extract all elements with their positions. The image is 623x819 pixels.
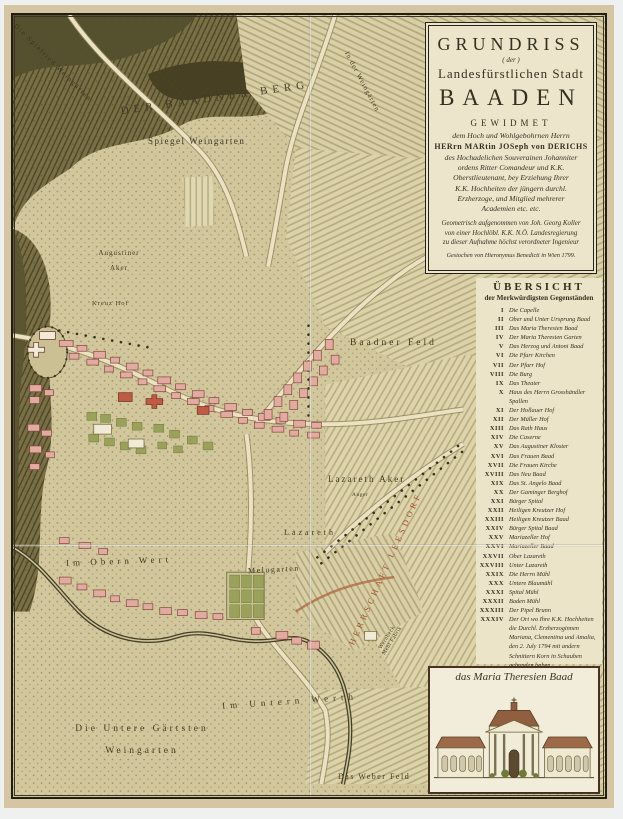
legend-item-numeral: VII bbox=[478, 361, 509, 370]
legend-panel: ÜBERSICHT der Merkwürdigsten Gegenstände… bbox=[476, 278, 602, 664]
map-title-baaden: BAADEN bbox=[433, 85, 589, 111]
dedication-heading: GEWIDMET bbox=[433, 118, 589, 128]
legend-item-numeral: XX bbox=[478, 488, 509, 497]
legend-item-XXXII: XXXIIBaden Mühl bbox=[478, 597, 600, 606]
map-sheet: Die Spielried Weingärten DER BAADNER BER… bbox=[4, 5, 614, 808]
legend-item-XVIII: XVIIIDas Neu Baad bbox=[478, 470, 600, 479]
legend-item-XVI: XVIDas Frauen Baad bbox=[478, 452, 600, 461]
legend-item-XXII: XXIIHeiligen Kreutzer Hof bbox=[478, 506, 600, 515]
legend-item-label: Heiligen Kreutzer Baad bbox=[509, 515, 600, 524]
legend-item-label: Das Augustiner Kloster bbox=[509, 442, 600, 451]
legend-item-XV: XVDas Augustiner Kloster bbox=[478, 442, 600, 451]
legend-item-numeral: XVIII bbox=[478, 470, 509, 479]
legend-item-numeral: XXXII bbox=[478, 597, 509, 606]
legend-item-numeral: II bbox=[478, 315, 509, 324]
map-title-der: ( der ) bbox=[433, 56, 589, 64]
legend-item-numeral: XIX bbox=[478, 479, 509, 488]
legend-item-numeral: XXIV bbox=[478, 524, 509, 533]
legend-item-XXV: XXVMariazeller Hof bbox=[478, 533, 600, 542]
legend-item-label: Der Ort wo Ihre K.K. Hochheiten die Durc… bbox=[509, 615, 600, 670]
dedication-body: des Hochadelichen Souverainen Johanniter… bbox=[433, 153, 589, 214]
inset-caption: das Maria Theresien Baad bbox=[430, 671, 598, 683]
maria-theresien-baad-drawing bbox=[430, 690, 598, 790]
legend-item-numeral: XVI bbox=[478, 452, 509, 461]
legend-subtitle: der Merkwürdigsten Gegenständen bbox=[478, 294, 600, 302]
legend-item-label: Das Rath Haus bbox=[509, 424, 600, 433]
legend-item-numeral: V bbox=[478, 342, 509, 351]
legend-item-label: Mariazeller Hof bbox=[509, 533, 600, 542]
legend-item-numeral: III bbox=[478, 324, 509, 333]
legend-item-numeral: XIII bbox=[478, 424, 509, 433]
legend-item-label: Die Frauen Kirche bbox=[509, 461, 600, 470]
legend-item-XII: XIIDer Müller Hof bbox=[478, 415, 600, 424]
legend-item-numeral: IV bbox=[478, 333, 509, 342]
legend-item-label: Das Maria Theresien Baad bbox=[509, 324, 600, 333]
legend-item-label: Der Müller Hof bbox=[509, 415, 600, 424]
legend-item-label: Spital Mühl bbox=[509, 588, 600, 597]
legend-item-XXIV: XXIVBürger Spital Baad bbox=[478, 524, 600, 533]
fold-crease-horizontal bbox=[13, 544, 605, 547]
legend-item-label: Die Herrn Mühl bbox=[509, 570, 600, 579]
title-cartouche-inner: GRUNDRISS ( der ) Landesfürstlichen Stad… bbox=[428, 25, 594, 271]
legend-item-label: Bürger Spital bbox=[509, 497, 600, 506]
legend-item-XXXIII: XXXIIIDer Pipel Brunn bbox=[478, 606, 600, 615]
legend-item-numeral: XV bbox=[478, 442, 509, 451]
legend-item-I: IDie Capelle bbox=[478, 306, 600, 315]
legend-item-numeral: XXIX bbox=[478, 570, 509, 579]
legend-item-numeral: VI bbox=[478, 351, 509, 360]
legend-item-label: Unter Lazareth bbox=[509, 561, 600, 570]
legend-item-IV: IVDer Maria Theresien Garten bbox=[478, 333, 600, 342]
legend-item-numeral: XXVIII bbox=[478, 561, 509, 570]
legend-item-label: Haus des Herrn Grosshändler Spallen bbox=[509, 388, 600, 406]
legend-item-numeral: XXXIII bbox=[478, 606, 509, 615]
legend-item-label: Der Pipel Brunn bbox=[509, 606, 600, 615]
legend-item-XXXIV: XXXIVDer Ort wo Ihre K.K. Hochheiten die… bbox=[478, 615, 600, 670]
engraver-imprint: Gestochen von Hieronymus Benedicti in Wi… bbox=[433, 252, 589, 259]
legend-item-numeral: XXII bbox=[478, 506, 509, 515]
legend-item-label: Das St. Angelo Baad bbox=[509, 479, 600, 488]
legend-item-numeral: XXV bbox=[478, 533, 509, 542]
map-title-stadt: Landesfürstlichen Stadt bbox=[433, 66, 589, 82]
dedication-intro: dem Hoch und Wohlgebohrnen Herrn bbox=[433, 131, 589, 140]
legend-item-label: Das Frauen Baad bbox=[509, 452, 600, 461]
legend-item-VII: VIIDer Pfarr Hof bbox=[478, 361, 600, 370]
legend-item-label: Der Maria Theresien Garten bbox=[509, 333, 600, 342]
surveyor-credit: Geometrisch aufgenommen von Joh. Georg K… bbox=[433, 219, 589, 247]
inset-view-frame: das Maria Theresien Baad bbox=[428, 666, 600, 794]
legend-item-numeral: XXIII bbox=[478, 515, 509, 524]
legend-item-label: Ober Lazareth bbox=[509, 552, 600, 561]
dedication-name: HERrn MARtin JOSeph von DERICHS bbox=[433, 142, 589, 151]
fold-crease-vertical bbox=[309, 15, 312, 797]
legend-item-numeral: XXX bbox=[478, 579, 509, 588]
legend-item-numeral: XIV bbox=[478, 433, 509, 442]
legend-item-label: Die Pfarr Kirchen bbox=[509, 351, 600, 360]
legend-item-II: IIOber und Unter Ursprung Baad bbox=[478, 315, 600, 324]
map-border-frame: Die Spielried Weingärten DER BAADNER BER… bbox=[11, 13, 607, 799]
legend-item-label: Der Gaminger Berghof bbox=[509, 488, 600, 497]
legend-item-VI: VIDie Pfarr Kirchen bbox=[478, 351, 600, 360]
legend-item-XXIII: XXIIIHeiligen Kreutzer Baad bbox=[478, 515, 600, 524]
legend-item-XXVIII: XXVIIIUnter Lazareth bbox=[478, 561, 600, 570]
legend-item-label: Die Burg bbox=[509, 370, 600, 379]
legend-item-XIV: XIVDie Caserne bbox=[478, 433, 600, 442]
legend-item-VIII: VIIIDie Burg bbox=[478, 370, 600, 379]
legend-item-label: Der Pfarr Hof bbox=[509, 361, 600, 370]
legend-item-label: Baden Mühl bbox=[509, 597, 600, 606]
legend-item-label: Ober und Unter Ursprung Baad bbox=[509, 315, 600, 324]
legend-item-numeral: XXXI bbox=[478, 588, 509, 597]
legend-item-label: Der Hollauer Hof bbox=[509, 406, 600, 415]
legend-item-XXXI: XXXISpital Mühl bbox=[478, 588, 600, 597]
legend-title: ÜBERSICHT bbox=[478, 281, 600, 293]
legend-item-XXIX: XXIXDie Herrn Mühl bbox=[478, 570, 600, 579]
legend-item-XIX: XIXDas St. Angelo Baad bbox=[478, 479, 600, 488]
legend-item-numeral: I bbox=[478, 306, 509, 315]
legend-item-label: Untere Blaumühl bbox=[509, 579, 600, 588]
legend-item-XVII: XVIIDie Frauen Kirche bbox=[478, 461, 600, 470]
legend-item-III: IIIDas Maria Theresien Baad bbox=[478, 324, 600, 333]
legend-item-label: Bürger Spital Baad bbox=[509, 524, 600, 533]
legend-item-XX: XXDer Gaminger Berghof bbox=[478, 488, 600, 497]
legend-item-IX: IXDas Theater bbox=[478, 379, 600, 388]
legend-item-numeral: XVII bbox=[478, 461, 509, 470]
legend-item-label: Das Herzog und Antoni Baad bbox=[509, 342, 600, 351]
legend-item-X: XHaus des Herrn Grosshändler Spallen bbox=[478, 388, 600, 406]
legend-item-label: Heiligen Kreutzer Hof bbox=[509, 506, 600, 515]
legend-item-XIII: XIIIDas Rath Haus bbox=[478, 424, 600, 433]
title-cartouche: GRUNDRISS ( der ) Landesfürstlichen Stad… bbox=[425, 22, 597, 274]
legend-item-numeral: IX bbox=[478, 379, 509, 388]
legend-item-label: Die Caserne bbox=[509, 433, 600, 442]
legend-item-numeral: XXVII bbox=[478, 552, 509, 561]
legend-item-label: Das Theater bbox=[509, 379, 600, 388]
legend-item-XXX: XXXUntere Blaumühl bbox=[478, 579, 600, 588]
legend-item-numeral: X bbox=[478, 388, 509, 397]
legend-item-label: Das Neu Baad bbox=[509, 470, 600, 479]
legend-item-V: VDas Herzog und Antoni Baad bbox=[478, 342, 600, 351]
map-title: GRUNDRISS bbox=[433, 34, 589, 55]
legend-item-numeral: XXI bbox=[478, 497, 509, 506]
legend-item-XI: XIDer Hollauer Hof bbox=[478, 406, 600, 415]
legend-item-XXVII: XXVIIOber Lazareth bbox=[478, 552, 600, 561]
legend-item-numeral: XXXIV bbox=[478, 615, 509, 624]
legend-list: IDie CapelleIIOber und Unter Ursprung Ba… bbox=[478, 306, 600, 670]
scanned-map-page: Die Spielried Weingärten DER BAADNER BER… bbox=[0, 0, 623, 819]
legend-item-label: Die Capelle bbox=[509, 306, 600, 315]
legend-item-numeral: XII bbox=[478, 415, 509, 424]
legend-item-numeral: XI bbox=[478, 406, 509, 415]
legend-item-numeral: VIII bbox=[478, 370, 509, 379]
legend-item-XXI: XXIBürger Spital bbox=[478, 497, 600, 506]
